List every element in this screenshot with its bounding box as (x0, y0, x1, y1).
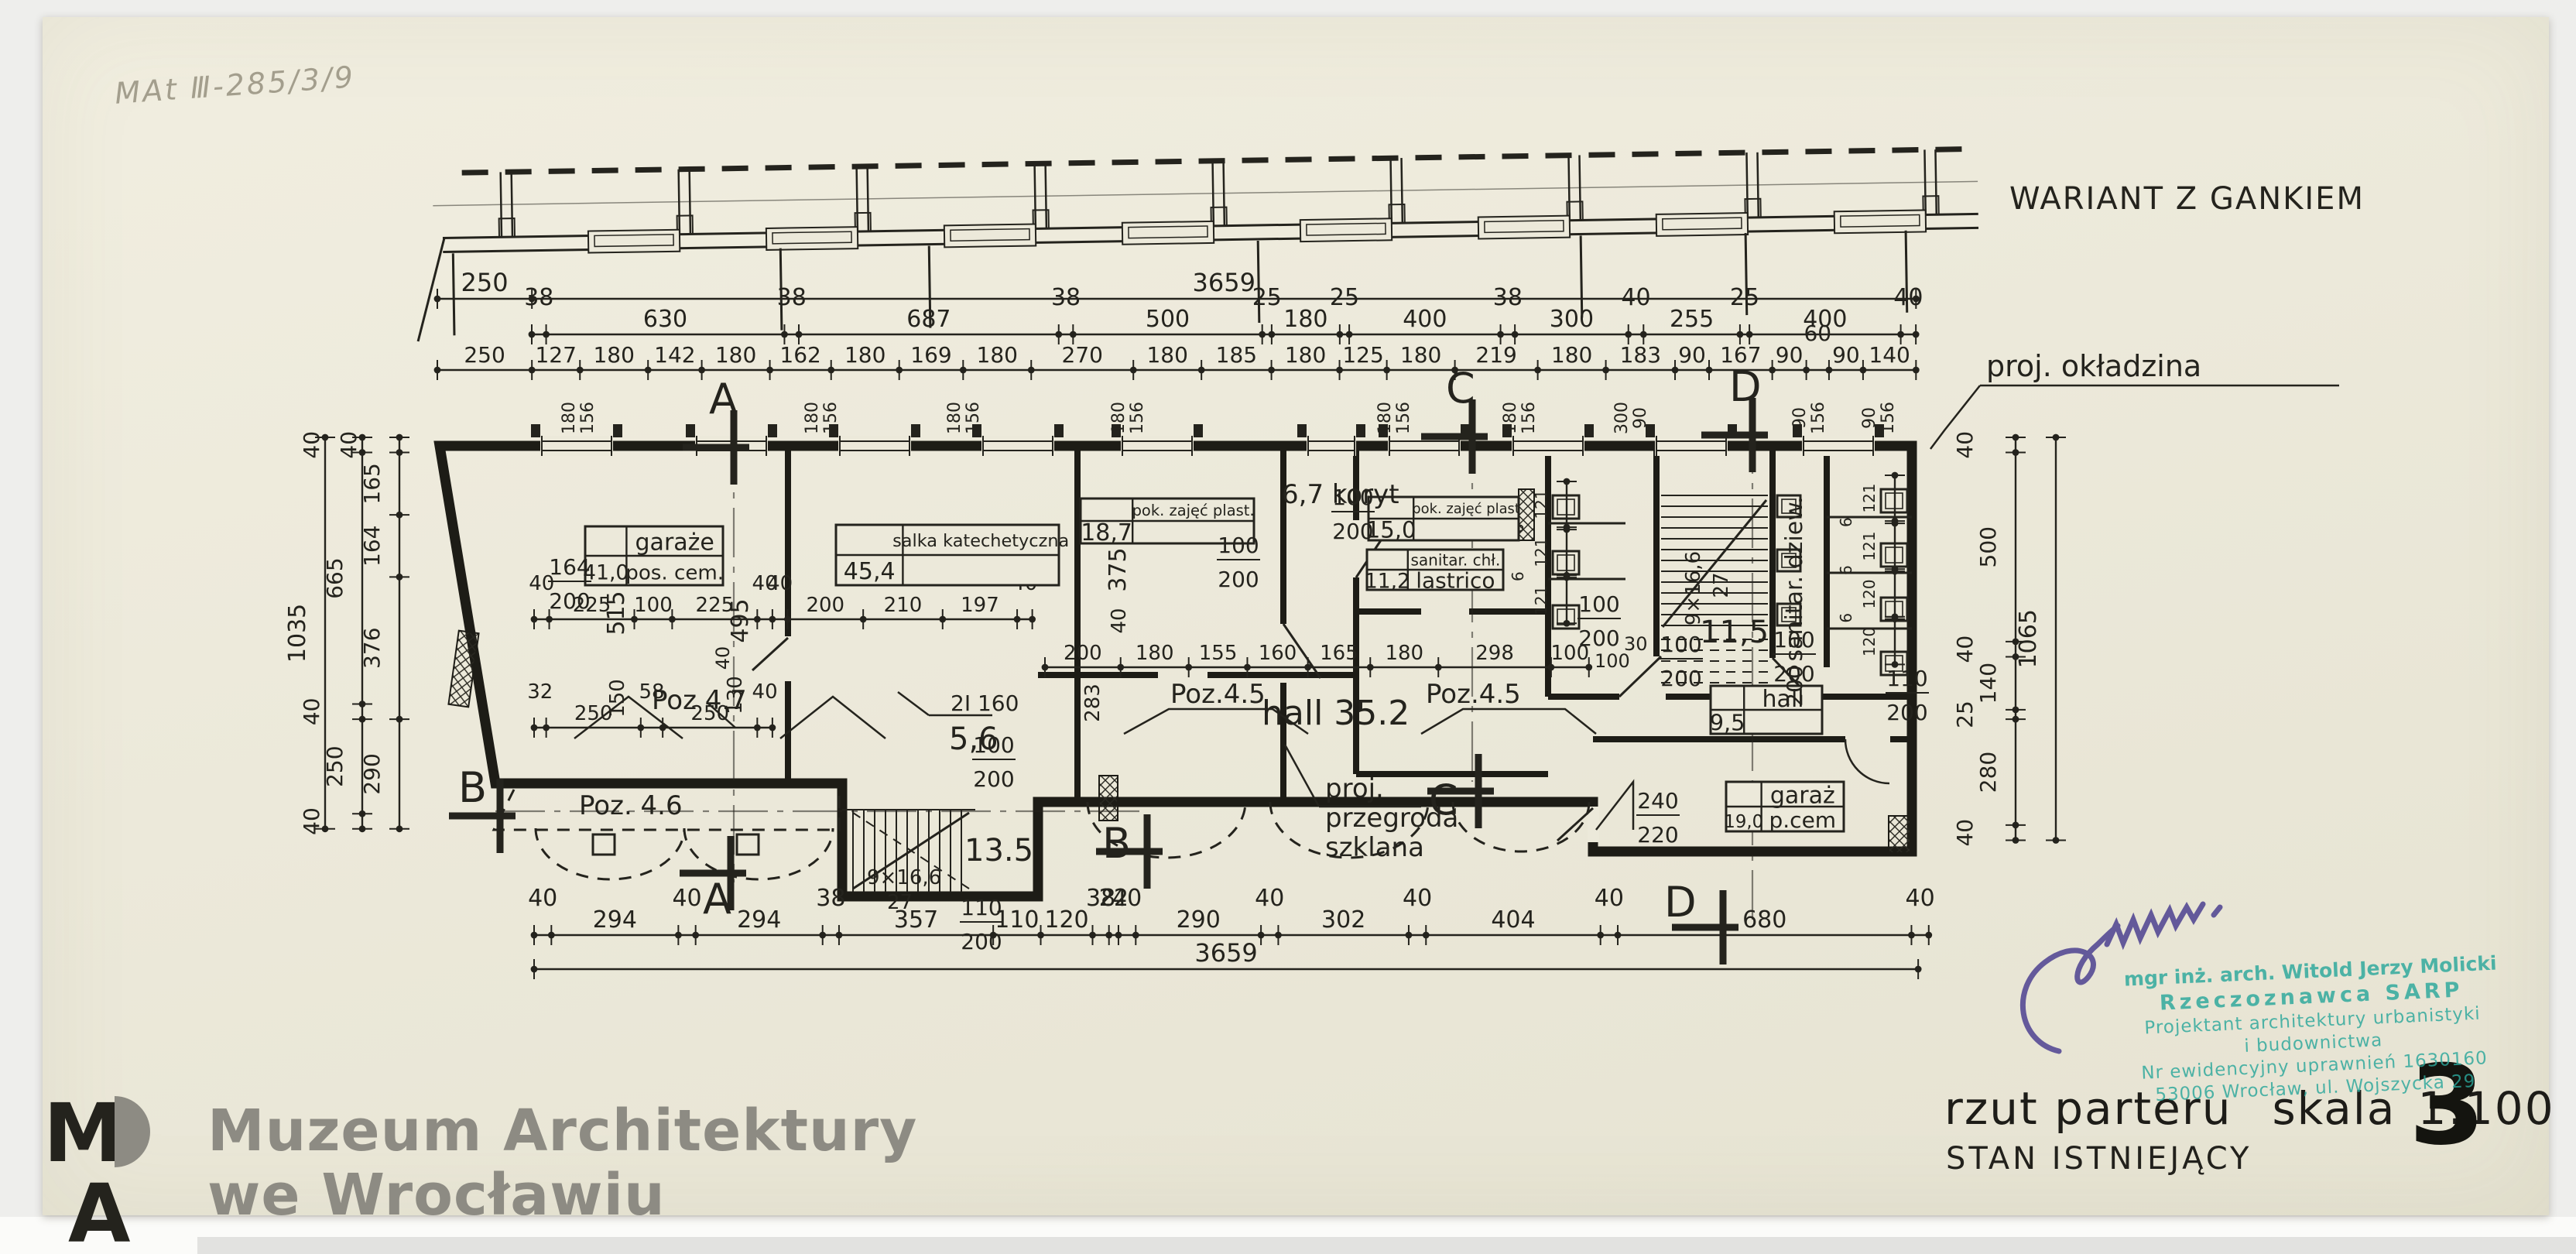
museum-name-line2: we Wrocławiu (207, 1163, 917, 1228)
annotation-text: 25 (1730, 284, 1759, 311)
annotation-text: 100 (634, 594, 673, 617)
plan-graphic (1568, 156, 1569, 221)
annotation-text: 156 (964, 402, 983, 434)
plan-graphic (690, 170, 690, 235)
annotation-text: 180 (715, 342, 756, 368)
annotation-text: 376 (359, 627, 385, 668)
annotation-text: 687 (906, 306, 951, 333)
annotation-text: 1035 (284, 604, 311, 663)
annotation-text: 180 (1501, 402, 1520, 434)
annotation-text: 40 (299, 807, 324, 835)
annotation-text: 9×16,6 (867, 866, 941, 889)
annotation-text: 180 (560, 402, 579, 434)
annotation-text: 180 (1375, 402, 1395, 434)
annotation-text: 6 (1837, 613, 1855, 623)
annotation-text: 156 (1809, 402, 1828, 434)
plan-graphic (501, 172, 502, 237)
annotation-text: 515 (603, 591, 630, 635)
plan-graphic (1757, 152, 1758, 218)
annotation-text: 250 (461, 268, 509, 297)
hatched-wall (1889, 816, 1910, 853)
annotation-text: 40 (672, 885, 701, 912)
annotation-text: p.cem (1769, 807, 1837, 833)
room-label-salka: salka katechetyczna45,4 (836, 525, 1069, 585)
museum-logo: M A (43, 1093, 184, 1248)
annotation-text: 290 (359, 753, 385, 794)
section-marker-C: C (1421, 364, 1488, 474)
annotation-text: 219 (1475, 342, 1516, 368)
plan-graphic (766, 227, 858, 250)
annotation-text: 160 (1259, 642, 1297, 665)
annotation-text: 294 (593, 906, 637, 934)
plan-graphic (1478, 216, 1570, 239)
annotation-text: 300 (1550, 306, 1594, 333)
annotation-text: 155 (1199, 642, 1238, 665)
annotation-text: 38 (816, 885, 845, 912)
plan-graphic (768, 424, 777, 437)
plan-graphic (1356, 424, 1365, 437)
annotation-text: 40 (1952, 431, 1978, 459)
annotation-text: 404 (1491, 906, 1535, 934)
annotation-text: 200 (1886, 700, 1927, 725)
annotation-text: 100 (1578, 591, 1619, 617)
annotation-text: B (458, 763, 487, 812)
annotation-text: 127 (535, 342, 576, 368)
annotation-text: 90 (1860, 407, 1879, 429)
door-dim: 240220 (1636, 788, 1680, 848)
annotation-text: 140 (1869, 342, 1910, 368)
hatched-wall (1099, 776, 1118, 821)
plan-graphic (857, 166, 858, 231)
annotation-text: 38 (524, 284, 553, 311)
annotation-text: 40 (1595, 885, 1624, 912)
signature-stroke (2023, 904, 2220, 1051)
annotation-text: 200 (1660, 666, 1701, 691)
annotation-text: 120 (1860, 579, 1879, 608)
annotation-text: 25 (1952, 701, 1978, 728)
annotation-text: 40 (1893, 284, 1923, 311)
door-swing (1845, 739, 1889, 783)
dashed-canopies (494, 739, 1889, 879)
annotation-text: 121 (1532, 586, 1550, 615)
plan-graphic (1935, 149, 1936, 214)
plan-graphic (1512, 436, 1584, 456)
annotation-text: 500 (1975, 526, 2001, 567)
annotation-text: 6 (1837, 517, 1855, 527)
terrace-column (737, 834, 759, 855)
dim-chain-bottom-total: 3659 (531, 938, 1922, 979)
annotation-text: 294 (737, 906, 781, 934)
annotation-text: 270 (1062, 342, 1103, 368)
annotation-text: 290 (1177, 906, 1221, 934)
annotation-text: 9×16,6 (1682, 551, 1705, 625)
door-dim: 100200 (972, 732, 1016, 792)
annotation-text: 200 (1578, 625, 1619, 651)
annotation-text: 32 (527, 680, 553, 704)
annotation-text: 164 (359, 526, 385, 567)
annotation-text: 40 (767, 572, 793, 595)
plan-graphic (981, 436, 1054, 456)
annotation-text: 40 (752, 680, 778, 704)
annotation-text: 300 (1612, 402, 1632, 434)
annotation-text: 40 (299, 431, 324, 459)
annotation-text: Poz. 4.6 (579, 790, 683, 821)
annotation-text: 665 (322, 557, 348, 598)
annotation-text: 40 (336, 431, 361, 459)
annotation-text: 200 (1773, 661, 1814, 687)
annotation-text: 38 (1493, 284, 1523, 311)
annotation-text: 680 (1742, 906, 1786, 934)
plan-graphic (1746, 152, 1747, 218)
annotation-text: 3659 (1193, 268, 1255, 297)
annotation-text: 400 (1403, 306, 1447, 333)
annotation-text: Poz.4.5 (1426, 679, 1521, 710)
plan-graphic (1122, 221, 1214, 245)
plan-graphic (1046, 163, 1046, 228)
annotation-text: 197 (961, 594, 999, 617)
slope-triangle (1596, 782, 1633, 830)
plan-graphic (911, 424, 920, 437)
annotation-text: pok. zajęć plast (1412, 501, 1520, 517)
annotation-text: 156 (1879, 402, 1898, 434)
plan-graphic (588, 230, 680, 253)
museum-watermark: M A Muzeum Architektury we Wrocławiu (43, 1093, 917, 1248)
hatched-wall (448, 631, 478, 708)
annotation-text: 183 (1620, 342, 1661, 368)
plan-graphic (1584, 424, 1594, 437)
annotation-text: 40 (1403, 885, 1432, 912)
przegroda-label-3: szklana (1325, 832, 1424, 863)
annotation-text: 121 (1860, 483, 1879, 512)
annotation-text: D (1664, 878, 1697, 927)
annotation-text: 25 (1252, 284, 1282, 311)
annotation-text: 9,5 (1710, 709, 1745, 735)
annotation-text: 90 (1631, 407, 1650, 429)
annotation-text: pok. zajęć plast. (1132, 502, 1255, 519)
annotation-text: 180 (1109, 402, 1129, 434)
annotation-text: 180 (1136, 642, 1174, 665)
annotation-text: 125 (1342, 342, 1383, 368)
annotation-text: 220 (1637, 822, 1678, 848)
plan-graphic (1391, 158, 1392, 223)
annotation-text: 1065 (2015, 609, 2042, 668)
annotation-text: 120 (1860, 627, 1879, 656)
annotation-text: 165 (1320, 642, 1358, 665)
annotation-text: 180 (593, 342, 634, 368)
annotation-text: 90 (1678, 342, 1706, 368)
annotation-text: 250 (464, 342, 505, 368)
annotation-text: 45,4 (844, 558, 896, 585)
annotation-text: 110 (1886, 666, 1927, 691)
annotation-text: 100 (1332, 485, 1373, 510)
annotation-text: 38 (777, 284, 807, 311)
poz-leader (1421, 709, 1596, 734)
annotation-text: 250 (322, 745, 348, 786)
drawing-subtitle: STAN ISTNIEJĄCY (1946, 1141, 2252, 1177)
annotation-text: 121 (1532, 538, 1550, 567)
plan-graphic (868, 166, 868, 231)
annotation-text: 140 (1975, 663, 2001, 704)
annotation-text: 200 (806, 594, 844, 617)
annotation-text: 162 (779, 342, 820, 368)
annotation-text: 180 (1551, 342, 1592, 368)
annotation-text: 200 (549, 588, 590, 614)
annotation-text: 169 (910, 342, 951, 368)
plan-graphic (1194, 424, 1203, 437)
plan-graphic (531, 424, 540, 437)
plan-graphic (416, 238, 446, 341)
annotation-text: 120 (1044, 906, 1088, 934)
annotation-text: 185 (1216, 342, 1257, 368)
annotation-text: 180 (1283, 306, 1327, 333)
room-label-sanitar-chl: sanitar. chł.11,2lastrico (1365, 550, 1503, 594)
annotation-text: 110 (961, 895, 1002, 920)
slope-triangle (780, 697, 885, 738)
annotation-text: 280 (1975, 752, 2001, 793)
annotation-text: 90 (1776, 342, 1804, 368)
annotation-text: 156 (578, 402, 598, 434)
annotation-text: 200 (961, 929, 1002, 954)
annotation-text: 100 (1660, 632, 1701, 657)
annotation-text: 500 (1146, 306, 1190, 333)
plan-graphic (1924, 149, 1925, 214)
annotation-text: 40 (528, 885, 557, 912)
plan-graphic (1663, 500, 1766, 627)
plan-graphic (1655, 436, 1728, 456)
plan-graphic (1307, 436, 1356, 456)
annotation-text: 142 (654, 342, 695, 368)
annotation-text: 40 (712, 646, 734, 670)
plan-graphic (433, 181, 1978, 205)
annotation-text: 302 (1321, 906, 1365, 934)
annotation-text: A (703, 875, 731, 923)
museum-name: Muzeum Architektury we Wrocławiu (207, 1099, 917, 1228)
annotation-text: 90 (1832, 342, 1860, 368)
annotation-text: 180 (977, 342, 1018, 368)
plan-graphic (1297, 424, 1307, 437)
przegroda-label-1: proj. (1325, 773, 1384, 804)
logo-letter-a: A (68, 1167, 131, 1248)
plan-graphic (1213, 161, 1214, 226)
annotation-text: 40 (1906, 885, 1935, 912)
annotation-text: B (1102, 819, 1131, 868)
plan-graphic (1453, 802, 1589, 851)
annotation-text: 180 (1285, 342, 1326, 368)
plan-graphic (1121, 436, 1194, 456)
annotation-text: 156 (821, 402, 841, 434)
annotation-text: 11,5 (1700, 615, 1769, 650)
annotation-text: 40 (1952, 636, 1978, 663)
annotation-text: 25 (1330, 284, 1359, 311)
plan-graphic (944, 224, 1036, 247)
annotation-text: 630 (643, 306, 687, 333)
plan-graphic (1035, 163, 1036, 228)
annotation-text: 180 (1385, 642, 1423, 665)
annotation-text: 200 (1064, 642, 1102, 665)
annotation-text: 19,0 (1724, 812, 1763, 832)
annotation-text: 156 (1128, 402, 1147, 434)
terrace-column (593, 834, 615, 855)
plan-graphic (838, 436, 911, 456)
variant-label: WARIANT Z GANKIEM (2009, 181, 2365, 217)
annotation-text: 180 (945, 402, 964, 434)
annotation-text: 90 (1790, 407, 1810, 429)
plan-graphic (686, 424, 695, 437)
plan-graphic (540, 436, 613, 456)
annotation-text: garaż (1770, 782, 1835, 809)
dim-chain-top-total: 2503659 (434, 268, 1920, 309)
annotation-text: lastrico (1416, 568, 1495, 594)
annotation-text: garaże (635, 529, 714, 556)
signature (2005, 882, 2338, 1068)
annotation-text: 156 (1519, 402, 1539, 434)
annotation-text: Poz.4.5 (1170, 679, 1266, 710)
door-gap (783, 636, 794, 681)
annotation-text: 164 (549, 554, 590, 580)
door-dim: 100200 (1217, 533, 1260, 592)
annotation-text: 13.5 (964, 833, 1033, 869)
plan-graphic (453, 253, 454, 335)
annotation-text: 6 (1837, 565, 1855, 575)
annotation-text: 38 (1051, 284, 1081, 311)
annotation-text: pos. cem. (625, 561, 724, 584)
annotation-text: 100 (1218, 533, 1259, 558)
plan-graphic (1656, 213, 1748, 236)
section-marker-B: B (1096, 814, 1163, 889)
annotation-text: 180 (1146, 342, 1187, 368)
annotation-text: 3659 (1194, 938, 1257, 968)
annotation-text: 27 (887, 891, 913, 914)
annotation-text: 6 (1509, 571, 1527, 581)
annotation-text: 240 (1637, 788, 1678, 814)
annotation-text: 200 (1218, 567, 1259, 592)
annotation-text: sanitar. chł. (1410, 551, 1500, 570)
plan-graphic (613, 424, 622, 437)
annotation-text: 27 (1710, 572, 1733, 598)
annotation-text: 11,2 (1365, 570, 1410, 594)
annotation-text: 40 (1952, 819, 1978, 847)
annotation-text: 156 (1394, 402, 1413, 434)
plan-graphic (679, 170, 680, 235)
annotation-text: 255 (1670, 306, 1714, 333)
dim-chain-stalls-right: 121612161206120 (1837, 472, 1905, 668)
annotation-text: 180 (844, 342, 885, 368)
annotation-text: 100 (973, 732, 1014, 758)
dim-chain-right-total: 1065 (2015, 434, 2066, 844)
plan-graphic (1802, 436, 1875, 456)
annotation-text: 298 (1475, 642, 1514, 665)
annotation-text: 121 (1860, 532, 1879, 561)
annotation-text: D (1729, 362, 1762, 411)
plan-graphic (1300, 218, 1392, 242)
okladzina-label: proj. okładzina (1986, 349, 2201, 383)
annotation-text: 18,7 (1081, 519, 1132, 546)
annotation-text: 40 (1112, 885, 1142, 912)
plan-graphic (1054, 424, 1064, 437)
annotation-text: 40 (299, 697, 324, 725)
plan-graphic (1579, 155, 1580, 220)
door-dim: 100200 (1577, 591, 1621, 651)
annotation-text: 40 (1621, 284, 1650, 311)
annotation-text: 495 (727, 598, 754, 642)
annotation-text: 60 (1804, 320, 1831, 346)
plan-graphic (1834, 210, 1926, 233)
annotation-text: 121 (1532, 489, 1550, 519)
annotation-text: 180 (803, 402, 822, 434)
annotation-text: 210 (884, 594, 923, 617)
annotation-text: 283 (1081, 684, 1105, 722)
room-label-garaze: garaże41,0pos. cem. (583, 526, 724, 585)
annotation-text: 165 (359, 463, 385, 504)
annotation-text: 40 (1255, 885, 1284, 912)
scanned-drawing-page: { "handwritten_note": "MAt Ⅲ-285/3/9", "… (0, 0, 2576, 1254)
annotation-text: 100 (1773, 627, 1814, 653)
annotation-text: Poz 4.7 (652, 685, 747, 716)
annotation-text: 2I 160 (951, 690, 1019, 716)
annotation-text: 200 (1332, 519, 1373, 544)
plan-graphic (1402, 158, 1403, 223)
annotation-text: hall 35.2 (1262, 694, 1410, 733)
annotation-text: 180 (1400, 342, 1441, 368)
museum-logo-shapes: M A (43, 1093, 150, 1248)
museum-name-line1: Muzeum Architektury (207, 1099, 917, 1163)
annotation-text: 40 (1108, 608, 1131, 633)
logo-half-disc (115, 1096, 150, 1167)
annotation-text: 375 (1105, 547, 1132, 591)
room-label-garaz-19: garaż19,0p.cem (1724, 782, 1844, 833)
annotation-text: 200 (973, 766, 1014, 792)
section-marker-D: D (1664, 878, 1738, 964)
annotation-text: salka katechetyczna (892, 531, 1069, 551)
plan-graphic (1224, 161, 1225, 226)
section-marker-B: B (449, 763, 516, 853)
plan-graphic (512, 172, 512, 237)
annotation-text: 100 (1595, 650, 1630, 672)
